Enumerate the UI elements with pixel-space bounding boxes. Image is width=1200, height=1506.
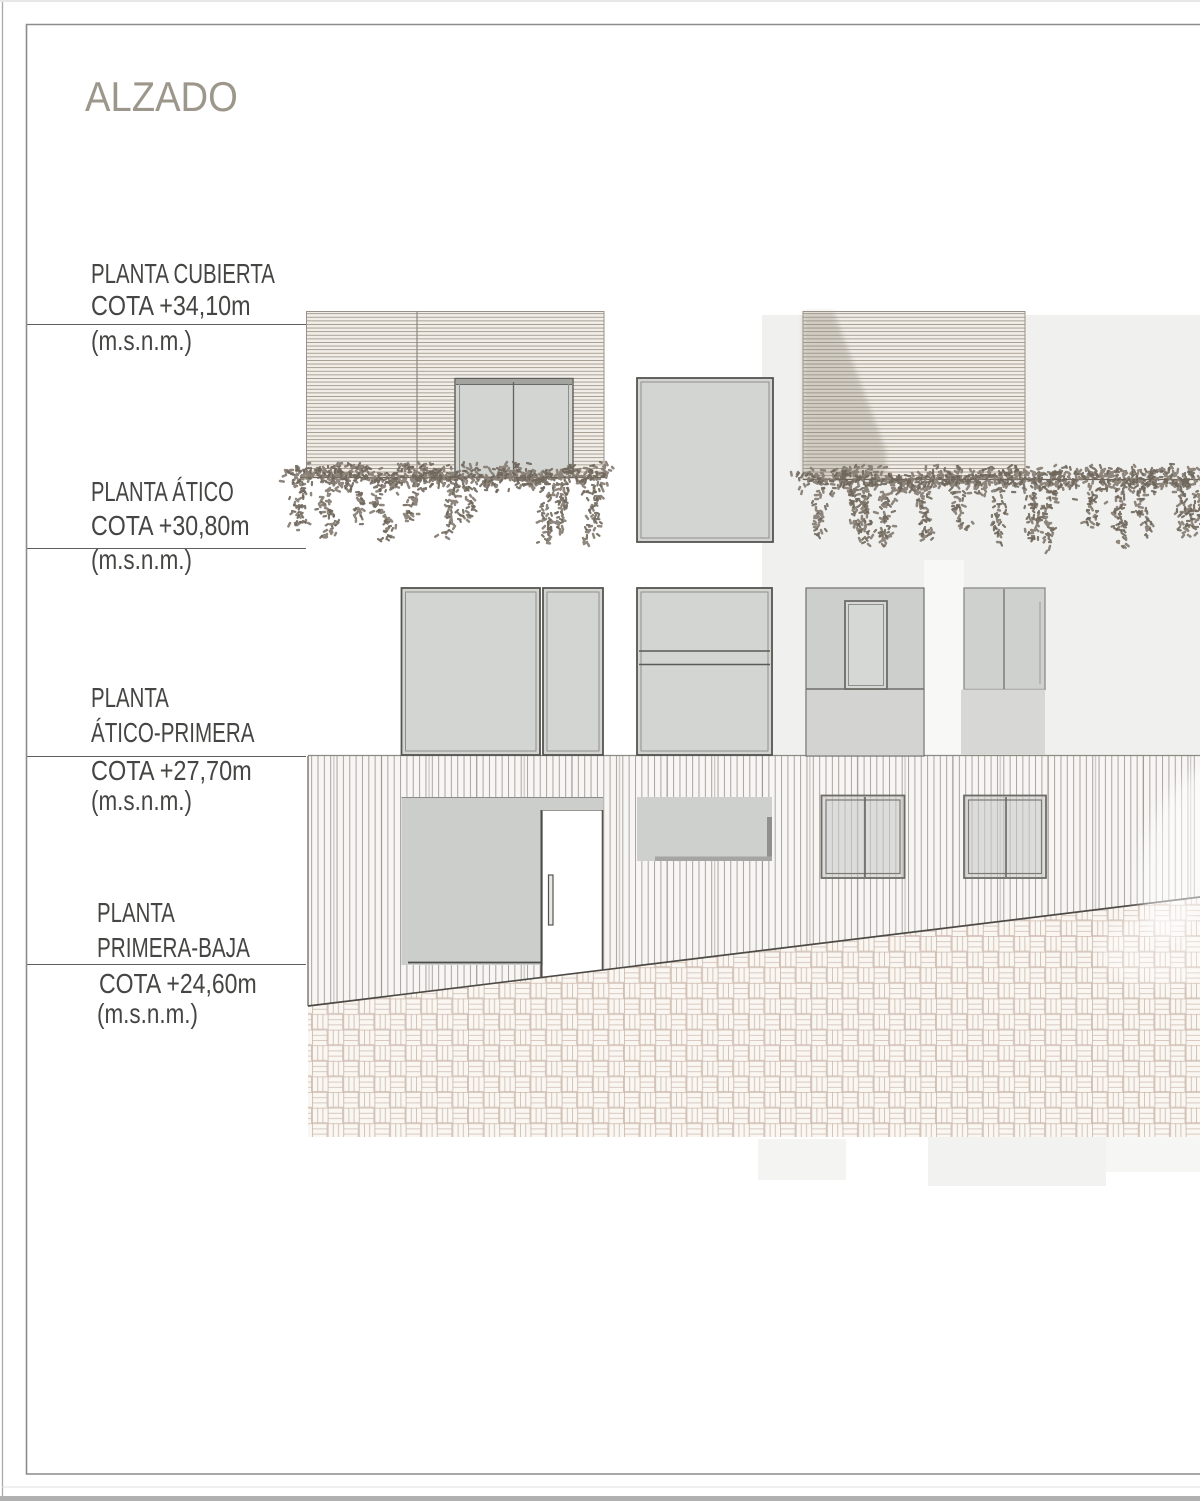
svg-text:COTA +30,80m: COTA +30,80m (91, 511, 250, 541)
svg-text:PLANTA CUBIERTA: PLANTA CUBIERTA (91, 259, 275, 290)
svg-text:PLANTA: PLANTA (97, 898, 175, 929)
svg-text:PRIMERA-BAJA: PRIMERA-BAJA (97, 933, 250, 964)
svg-text:PLANTA ÁTICO: PLANTA ÁTICO (91, 477, 234, 508)
svg-text:COTA +24,60m: COTA +24,60m (99, 969, 257, 1000)
svg-text:ALZADO: ALZADO (85, 73, 238, 120)
svg-text:COTA +27,70m: COTA +27,70m (91, 756, 252, 786)
svg-text:PLANTA: PLANTA (91, 683, 169, 714)
svg-text:(m.s.n.m.): (m.s.n.m.) (97, 999, 198, 1030)
svg-text:(m.s.n.m.): (m.s.n.m.) (91, 545, 192, 576)
svg-text:ÁTICO-PRIMERA: ÁTICO-PRIMERA (91, 718, 255, 749)
svg-text:(m.s.n.m.): (m.s.n.m.) (91, 786, 192, 817)
svg-text:COTA +34,10m: COTA +34,10m (91, 291, 251, 321)
svg-text:(m.s.n.m.): (m.s.n.m.) (91, 326, 192, 357)
